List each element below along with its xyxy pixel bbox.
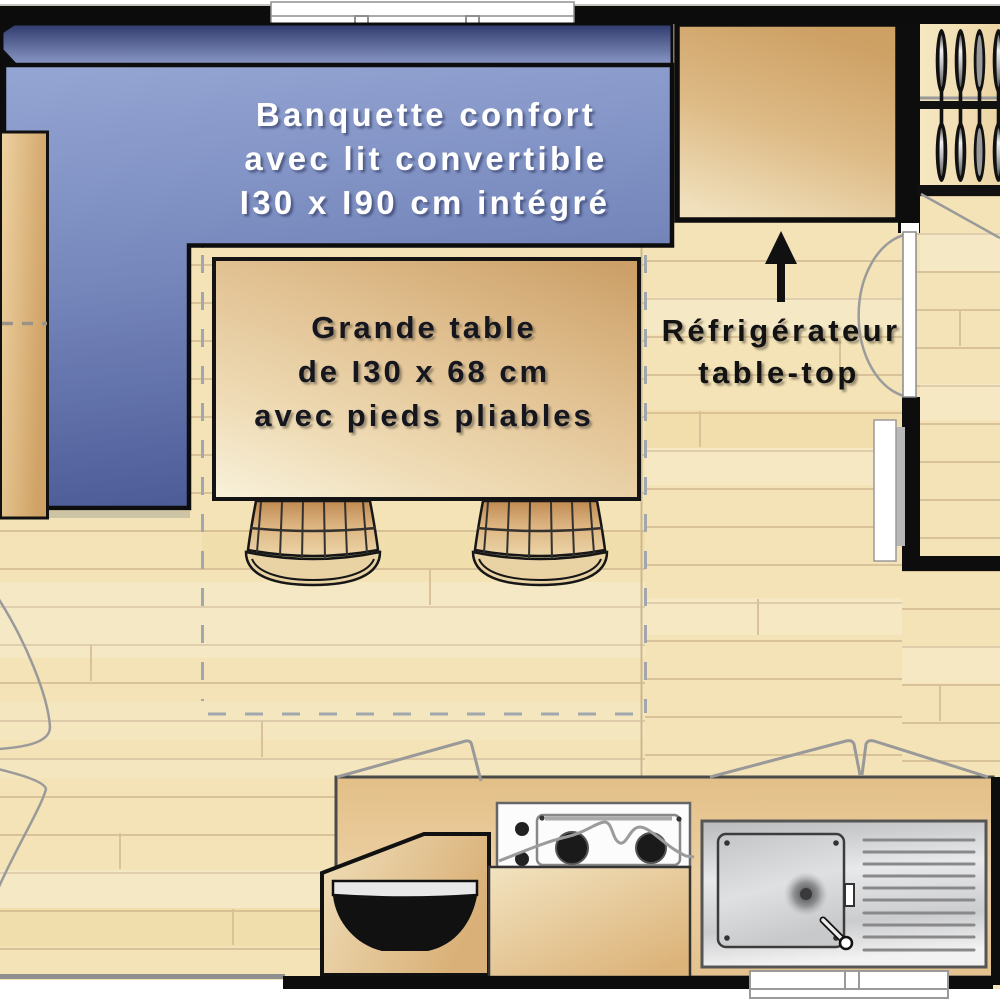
svg-text:table-top: table-top: [698, 355, 859, 390]
svg-text:Banquette confort: Banquette confort: [256, 96, 596, 133]
svg-text:avec pieds pliables: avec pieds pliables: [254, 398, 594, 433]
svg-text:I30 x I90 cm intégré: I30 x I90 cm intégré: [240, 184, 611, 221]
svg-text:avec lit convertible: avec lit convertible: [244, 140, 607, 177]
svg-text:de I30 x 68 cm: de I30 x 68 cm: [298, 354, 550, 389]
svg-text:Grande table: Grande table: [311, 310, 537, 345]
svg-text:Réfrigérateur: Réfrigérateur: [662, 313, 901, 348]
